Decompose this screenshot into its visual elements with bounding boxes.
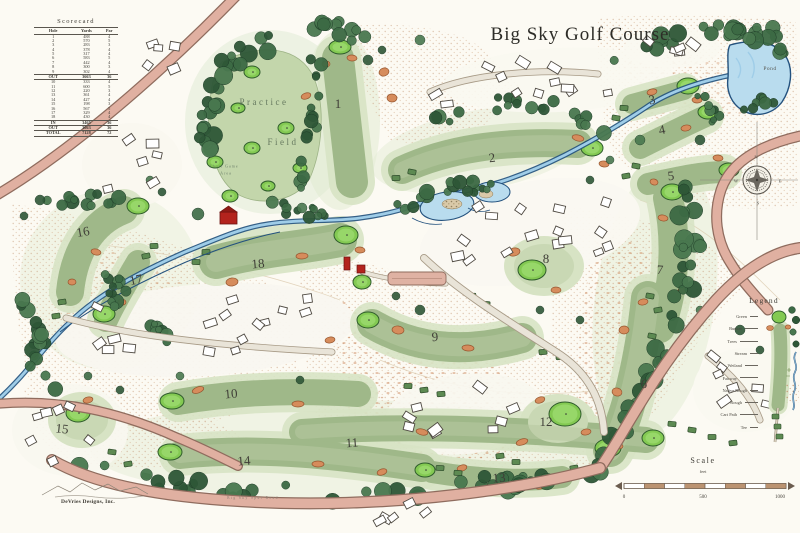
hole-label-12: 12	[540, 414, 553, 430]
legend-item-green: Green	[700, 314, 758, 319]
legend-leader-line	[745, 328, 758, 329]
legend-leader-line	[740, 341, 758, 342]
compass-e: E	[779, 179, 782, 184]
legend-leader-line	[745, 402, 758, 403]
legend-item-wetland: Wetland	[700, 363, 758, 368]
legend-leader-line	[740, 414, 758, 415]
legend-leader-line	[745, 365, 758, 366]
scale-tick-500: 500	[699, 495, 707, 500]
hole-label-11: 11	[345, 435, 359, 452]
compass-w: W	[734, 179, 738, 184]
legend-item-bunker: Bunker	[700, 326, 758, 331]
legend-leader-line	[750, 390, 758, 391]
hole-label-7: 7	[656, 262, 664, 278]
field-label: Field	[267, 137, 298, 147]
legend: Legend GreenBunkerTreesStreamWetlandFair…	[700, 294, 800, 444]
scorecard: Scorecard HoleYardsPar 14884257053283343…	[34, 18, 118, 137]
hole-label-15: 15	[55, 420, 70, 437]
legend-item-rough: Rough	[700, 400, 758, 405]
legend-item-tee: Tee	[700, 425, 758, 430]
pond-label: Pond	[763, 66, 776, 72]
hole-label-1: 1	[335, 96, 342, 112]
scale-tick-0: 0	[623, 495, 626, 500]
scale-unit: feet	[608, 469, 798, 474]
short-game-label: Short Game	[209, 164, 238, 169]
legend-leader-line	[750, 353, 758, 354]
map-title: Big Sky Golf Course	[470, 24, 690, 46]
scale-title: Scale	[608, 456, 798, 465]
scale-tick-1000: 1000	[775, 495, 785, 500]
hole-label-18: 18	[251, 255, 265, 272]
compass-n: N	[754, 155, 757, 160]
legend-item-fairway: Fairway	[700, 376, 758, 381]
legend-title: Legend	[736, 296, 792, 305]
scorecard-table: HoleYardsPar 148842570532833437845317465…	[34, 27, 118, 137]
legend-item-native-rough: Native Rough	[700, 388, 758, 393]
legend-item-stream: Stream	[700, 351, 758, 356]
hole-label-16: 16	[75, 223, 91, 241]
designer-credit: DeVries Designs, Inc.	[36, 499, 140, 505]
hole-label-14: 14	[237, 453, 251, 470]
hole-label-8: 8	[543, 251, 550, 267]
legend-leader-line	[750, 316, 758, 317]
golf-course-map: Scorecard HoleYardsPar 14884257053283343…	[0, 0, 800, 533]
legend-leader-line	[750, 427, 758, 428]
road-label: Big Sky Spur Road	[227, 496, 279, 500]
scorecard-row: TOTAL712872	[34, 131, 118, 136]
hole-label-9: 9	[431, 329, 439, 345]
legend-leader-line	[740, 377, 758, 378]
course-artwork	[0, 0, 800, 533]
legend-item-trees: Trees	[700, 339, 758, 344]
hole-label-13: 13	[492, 470, 506, 487]
legend-item-cart-path: Cart Path	[700, 412, 758, 417]
compass-s: S	[757, 201, 760, 206]
scorecard-title: Scorecard	[34, 18, 118, 25]
hole-label-10: 10	[224, 385, 238, 402]
short-game-area-label: Area	[220, 171, 232, 176]
practice-label: Practice	[240, 97, 289, 107]
scale: Scale feet 05001000	[608, 456, 798, 511]
